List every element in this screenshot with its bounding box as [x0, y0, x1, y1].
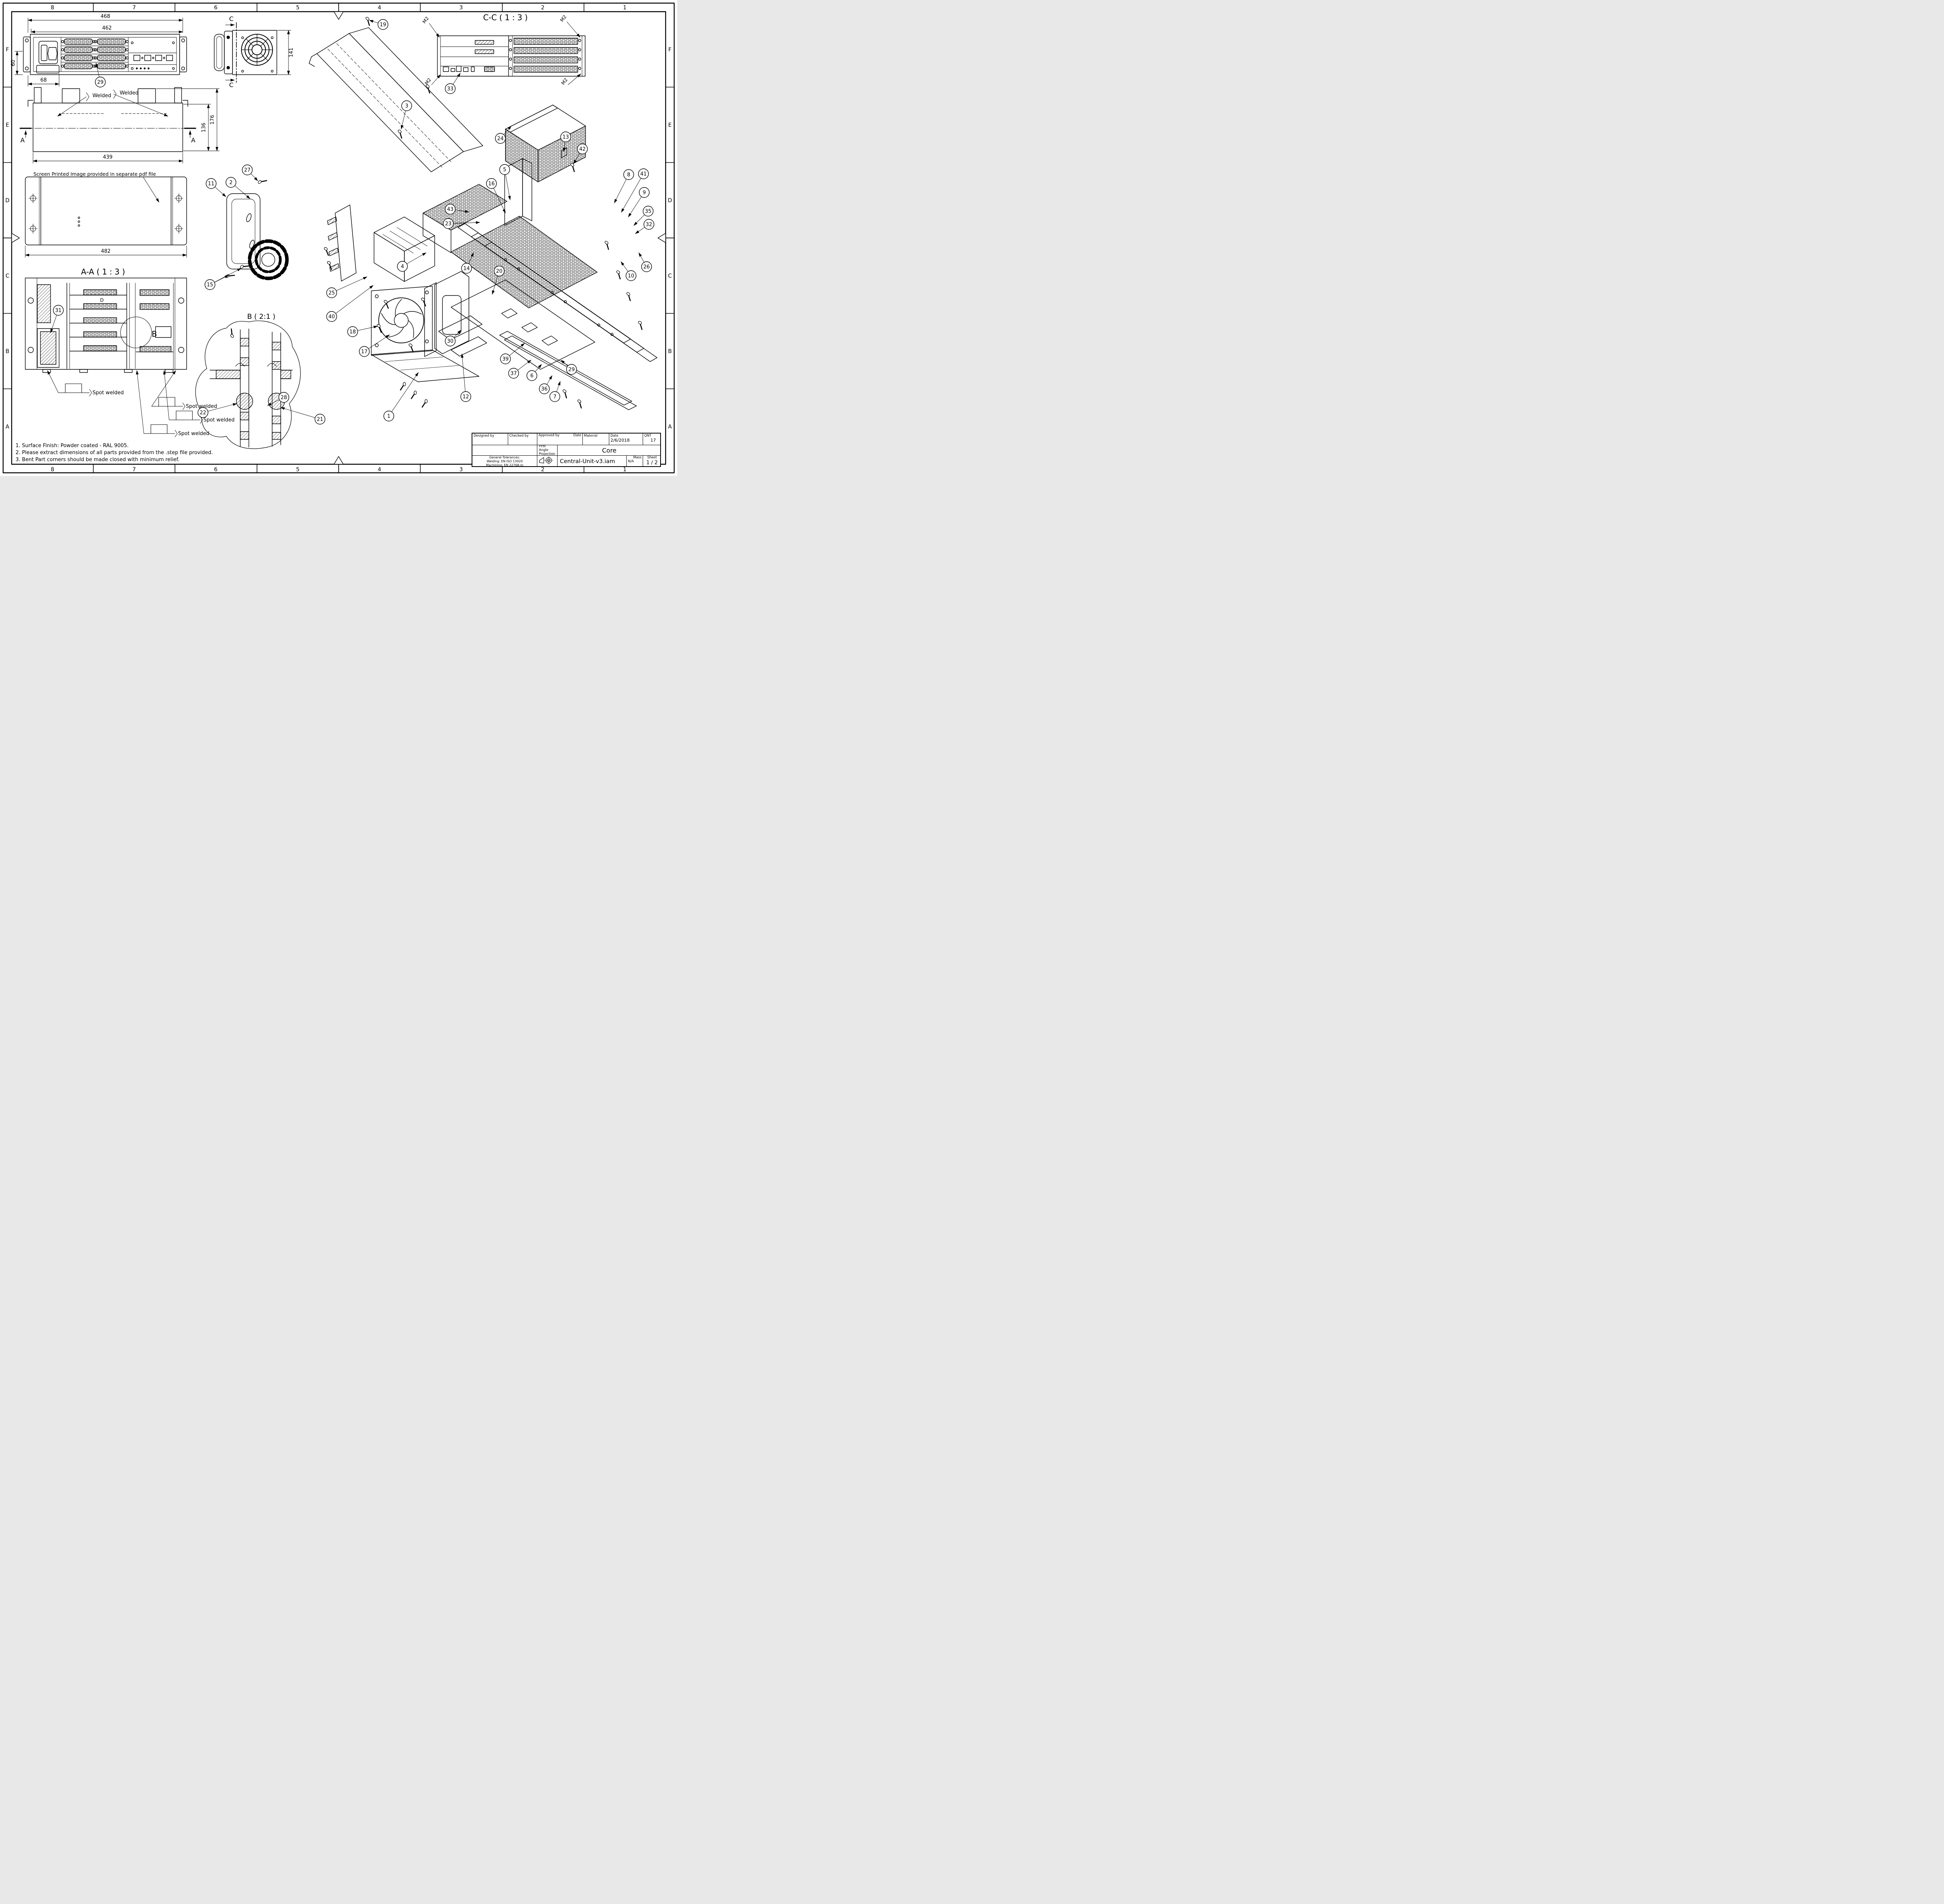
callout-number-36: 36 [541, 386, 548, 392]
qnt-label: QNT [644, 434, 651, 438]
grid-row-left-A: A [5, 424, 9, 430]
grid-col-bottom-2: 2 [541, 467, 545, 473]
card-rows [514, 38, 578, 72]
sheet-label: Sheet [644, 456, 660, 460]
part-backplane [451, 216, 597, 308]
rj45-jacks [134, 55, 173, 61]
callout-number-43: 43 [447, 207, 454, 213]
welded-label-0: Welded [93, 93, 111, 99]
part-name: Core [602, 447, 616, 454]
projection-label-2: Projection [539, 452, 555, 456]
callout-number-41: 41 [640, 171, 647, 177]
date-value: 2/6/2018 [610, 438, 629, 443]
spot-welded-label-0: Spot welded [93, 390, 124, 396]
section-letter-a-right: A [191, 136, 196, 144]
callout-number-35: 35 [645, 209, 652, 215]
first-angle-projection-icon [537, 456, 555, 465]
callout-number-30: 30 [447, 339, 454, 344]
view-section-aa [25, 278, 187, 372]
m2-label-1: M2 [559, 14, 568, 23]
dim-482: 482 [101, 248, 111, 254]
mass-value: N/A [628, 460, 634, 463]
m2-label-0: M2 [421, 16, 430, 24]
grid-row-left-C: C [5, 273, 9, 279]
callout-number-28: 28 [281, 395, 287, 401]
grid-row-right-F: F [668, 47, 671, 53]
date-label: Date [610, 434, 618, 438]
checked-by-label: Checked by [509, 434, 529, 438]
label-d: D [100, 297, 103, 303]
grid-col-top-8: 8 [51, 5, 54, 11]
callout-number-22: 22 [200, 410, 206, 416]
front-led-dots [78, 217, 80, 226]
grid-col-top-4: 4 [378, 5, 381, 11]
callout-number-31: 31 [55, 308, 62, 314]
view-detail-b [196, 321, 301, 449]
callout-number-27: 27 [244, 168, 251, 173]
callout-number-20: 20 [496, 269, 503, 274]
callout-number-21: 21 [317, 417, 323, 423]
border-frame [3, 3, 674, 473]
title-detail-b: B ( 2:1 ) [247, 313, 276, 321]
callout-number-39: 39 [502, 357, 509, 362]
callout-number-5: 5 [503, 167, 506, 173]
grid-row-right-D: D [668, 198, 672, 204]
led-dots [136, 68, 150, 70]
grid-col-top-6: 6 [214, 5, 218, 11]
drawing-canvas: 468 462 60 68 141 136 176 439 482 C-C ( … [0, 0, 677, 476]
dim-176: 176 [210, 115, 215, 125]
grid-row-right-A: A [668, 424, 672, 430]
title-block: Designed by Checked by Approved by Date … [472, 433, 661, 467]
grid-col-top-3: 3 [460, 5, 463, 11]
callout-number-8: 8 [627, 172, 630, 178]
callout-number-26: 26 [643, 264, 650, 270]
callout-number-40: 40 [329, 314, 335, 320]
dim-141: 141 [288, 48, 294, 58]
view-rear-panel [23, 34, 187, 75]
spot-welded-label-3: Spot welded [178, 431, 209, 437]
grid-row-left-D: D [5, 198, 10, 204]
m2-label-2: M2 [424, 77, 432, 86]
view-exploded [225, 17, 657, 410]
spot-weld-symbol-3 [151, 425, 167, 434]
spot-weld-symbol-0 [65, 384, 82, 393]
grid-col-top-5: 5 [296, 5, 300, 11]
qnt-value: 17 [650, 438, 656, 443]
grid-col-top-1: 1 [623, 5, 627, 11]
fan-grille [241, 34, 273, 65]
part-fan-grille-ring [250, 241, 287, 278]
grid-row-left-B: B [5, 348, 9, 355]
center-marks [3, 3, 674, 473]
approved-date-label: Date [573, 434, 581, 444]
grid-col-top-2: 2 [541, 5, 545, 11]
grid-col-bottom-4: 4 [378, 467, 381, 473]
grid-col-bottom-1: 1 [623, 467, 627, 473]
mounting-holes [29, 194, 183, 233]
spot-welded-label-2: Spot welded [203, 417, 234, 423]
grid-col-bottom-8: 8 [51, 467, 54, 473]
title-section-aa: A-A ( 1 : 3 ) [81, 267, 125, 276]
dim-136: 136 [201, 123, 207, 133]
drawing-sheet: 468 462 60 68 141 136 176 439 482 C-C ( … [0, 0, 677, 476]
filename: Central-Unit-v3.iam [560, 458, 615, 465]
dsub-connectors [61, 39, 128, 69]
grid-row-left-E: E [6, 122, 9, 128]
callout-number-1: 1 [387, 414, 390, 420]
callout-number-29: 29 [97, 80, 104, 86]
part-fan-plate [371, 286, 432, 355]
note-1: 1. Surface Finish: Powder coated - RAL 9… [16, 443, 129, 449]
grid-col-bottom-5: 5 [296, 467, 300, 473]
callout-number-14: 14 [463, 266, 470, 272]
dim-439: 439 [103, 154, 113, 160]
tolerance-machining: Machining: EN 22768-m [486, 463, 523, 467]
view-side-fan [214, 23, 277, 82]
dim-462: 462 [102, 25, 112, 31]
callout-number-42: 42 [579, 147, 586, 152]
note-3: 3. Bent Part corners should be made clos… [16, 457, 179, 463]
material-label: Material [584, 434, 598, 438]
view-section-cc [437, 36, 585, 76]
section-letter-c-bottom: C [229, 81, 233, 89]
spot-weld-symbol-2 [176, 411, 192, 420]
mass-label: Mass [628, 456, 642, 460]
callout-number-23: 23 [445, 221, 452, 227]
dim-60: 60 [10, 60, 16, 66]
spot-welded-label-1: Spot welded [186, 404, 217, 409]
sheet-value: 1 / 2 [644, 460, 660, 466]
callout-number-29: 29 [568, 367, 575, 373]
callout-number-7: 7 [553, 394, 556, 400]
detail-b-letter: B [152, 329, 157, 339]
callout-number-18: 18 [350, 329, 356, 335]
welded-label-1: Welded [120, 90, 138, 96]
dim-468: 468 [101, 14, 110, 19]
card-stack [70, 290, 126, 351]
title-section-cc: C-C ( 1 : 3 ) [483, 13, 528, 22]
grid-col-top-7: 7 [133, 5, 136, 11]
callout-number-4: 4 [401, 264, 404, 270]
part-top-cover [309, 28, 483, 172]
grid-col-bottom-7: 7 [133, 467, 136, 473]
callout-number-33: 33 [447, 86, 454, 92]
callout-number-9: 9 [643, 190, 646, 196]
grid-col-bottom-3: 3 [460, 467, 463, 473]
label-screen-printed: Screen Printed Image provided in separat… [33, 171, 156, 177]
grid-col-bottom-6: 6 [214, 467, 218, 473]
callout-number-24: 24 [497, 136, 504, 142]
section-line-a [20, 128, 196, 138]
callout-number-37: 37 [510, 371, 517, 377]
callout-number-2: 2 [229, 180, 233, 186]
callout-number-13: 13 [563, 135, 569, 140]
callout-number-10: 10 [628, 273, 635, 279]
view-front-panel [25, 177, 187, 245]
callout-number-17: 17 [361, 349, 368, 355]
note-2: 2. Please extract dimensions of all part… [16, 450, 213, 456]
grid-row-left-F: F [6, 47, 9, 53]
section-letter-a-left: A [21, 136, 25, 144]
approved-by-label: Approved by [538, 434, 559, 444]
designed-by-label: Designed by [474, 434, 494, 438]
projection-label-1: First Angle [539, 445, 556, 452]
callout-number-6: 6 [530, 373, 533, 379]
section-letter-c-top: C [229, 15, 233, 23]
callout-number-32: 32 [646, 222, 652, 228]
grid-row-right-B: B [668, 348, 672, 355]
callout-number-11: 11 [208, 181, 215, 187]
callout-number-25: 25 [329, 290, 335, 296]
part-card-cage-a [374, 217, 435, 281]
callout-number-16: 16 [488, 181, 495, 187]
m2-label-3: M2 [560, 77, 569, 86]
callout-number-19: 19 [380, 22, 386, 28]
callout-number-12: 12 [463, 394, 469, 400]
grid-row-right-E: E [668, 122, 672, 128]
tolerances-title: General Tolerances: [489, 456, 520, 460]
callout-number-3: 3 [405, 103, 408, 109]
section-line-c [226, 23, 236, 82]
callout-number-15: 15 [207, 282, 213, 288]
tolerance-welding: Welding: EN ISO 13920 [487, 460, 523, 463]
dim-68: 68 [40, 77, 47, 83]
grid-row-right-C: C [668, 273, 672, 279]
